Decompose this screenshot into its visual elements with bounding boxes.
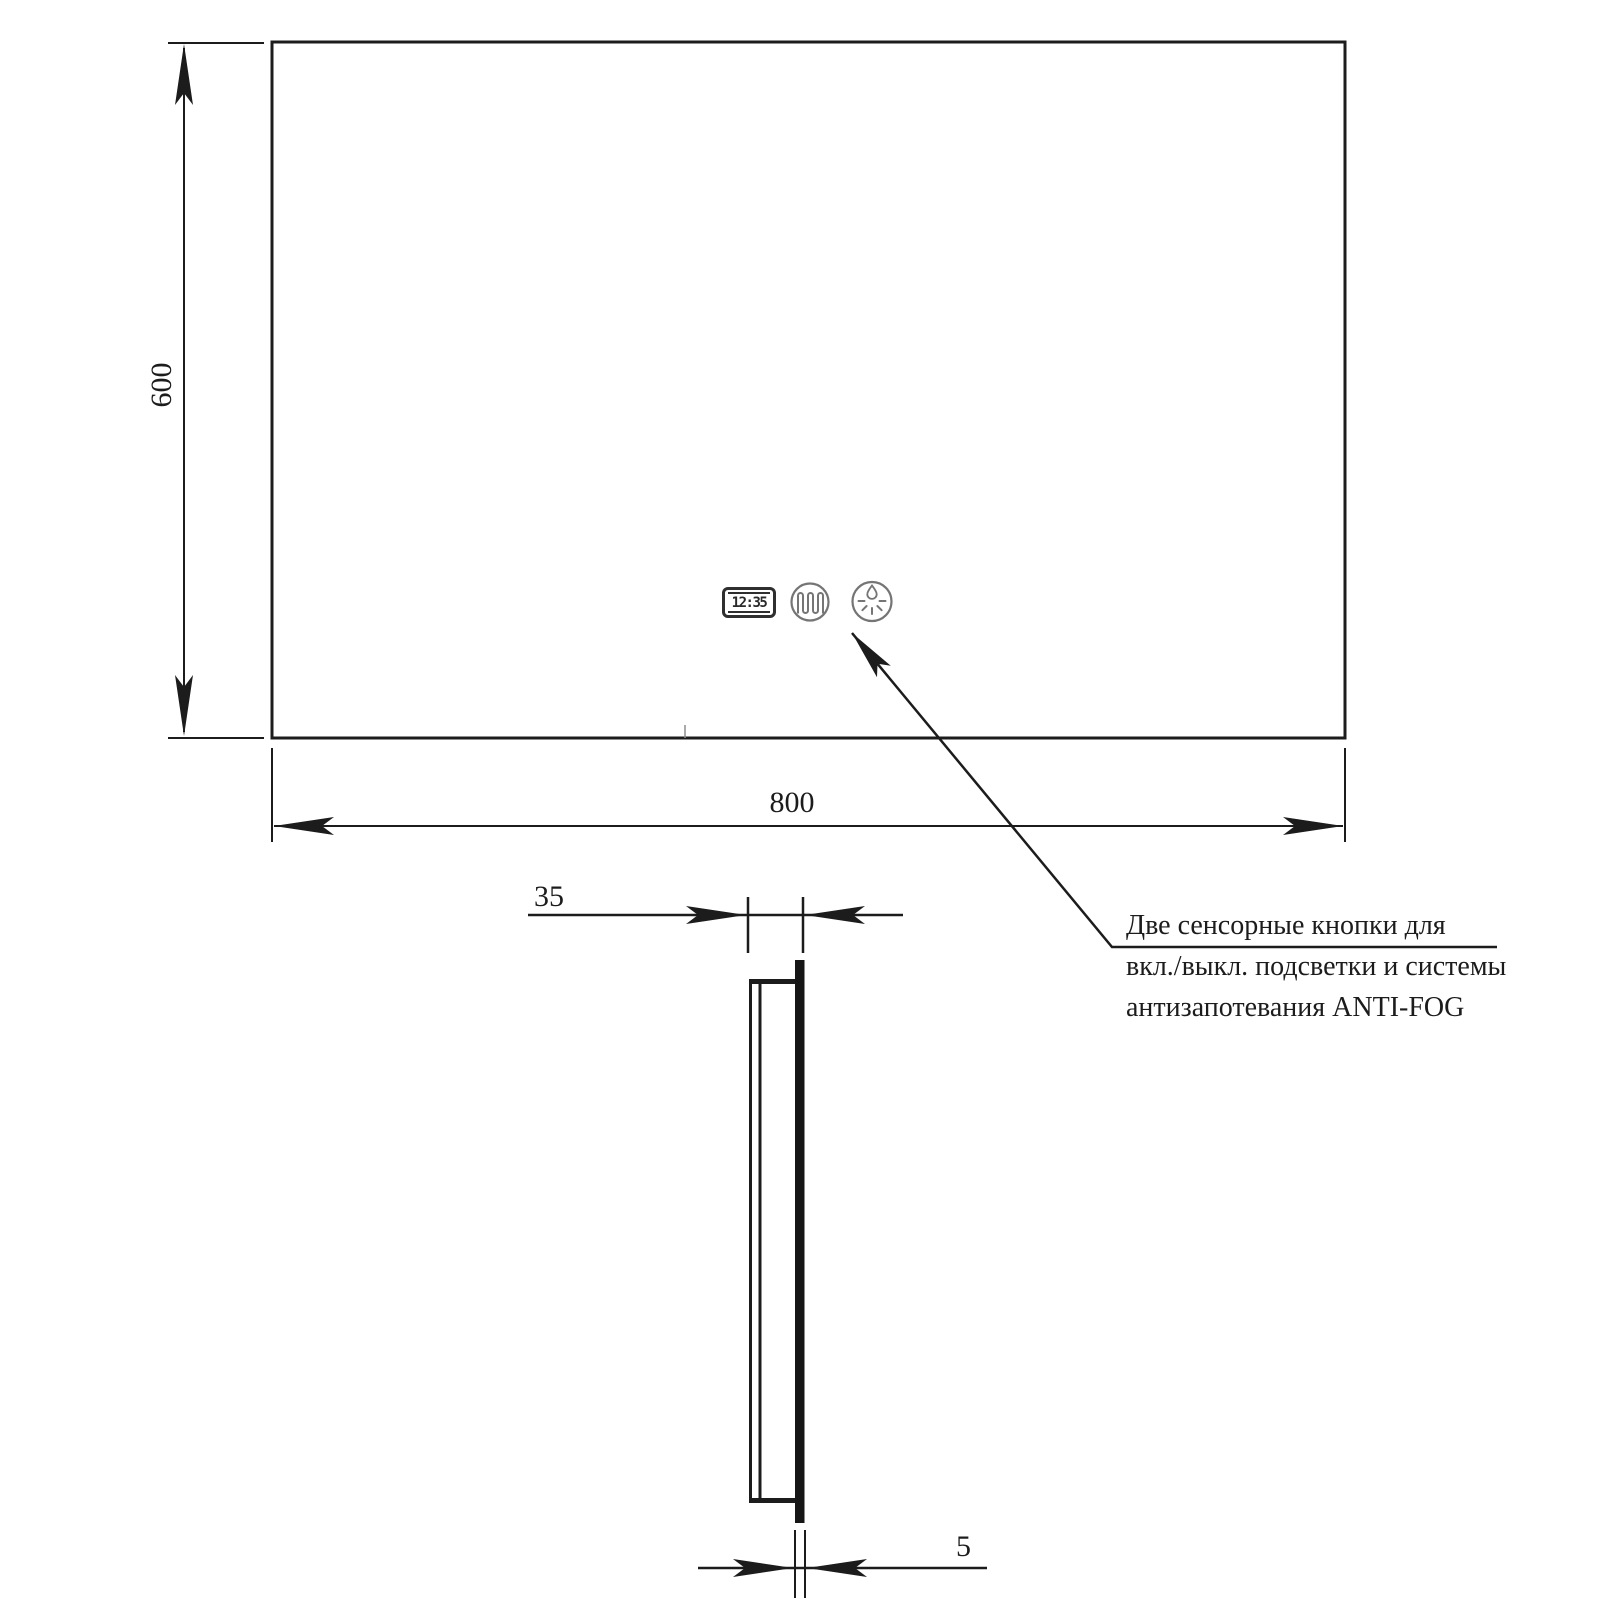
height-dim-label: 600 <box>145 340 179 430</box>
dim-5-lines <box>698 1530 987 1598</box>
leader-arrowhead-icon <box>852 633 891 677</box>
annotation-line-3: антизапотевания ANTI-FOG <box>1126 991 1464 1025</box>
clock-display-icon: 12:35 <box>722 587 776 618</box>
leader-arrow <box>852 633 1497 947</box>
glass-thickness-dim-label: 5 <box>956 1530 971 1564</box>
profile-mirror-glass <box>795 960 805 1523</box>
depth-dim-label: 35 <box>534 880 564 914</box>
droplet-glyph <box>867 586 876 599</box>
mirror-front-rect <box>272 42 1345 738</box>
leader-line <box>852 633 1497 947</box>
annotation-line-2: вкл./выкл. подсветки и системы <box>1126 950 1506 984</box>
side-view-profile <box>749 960 805 1523</box>
width-dim-label: 800 <box>722 786 862 820</box>
droplet-rays-icon <box>853 582 892 621</box>
dim-600-lines <box>168 43 264 738</box>
heater-coil-icon <box>792 584 829 621</box>
front-view-outline <box>272 42 1345 738</box>
dim-35-lines <box>528 897 903 953</box>
heater-coil-glyph <box>798 593 823 614</box>
technical-drawing-canvas: 12:35 600 800 35 5 Две сенсорные кнопки … <box>0 0 1600 1600</box>
clock-time: 12:35 <box>728 592 770 613</box>
rays-glyph <box>859 601 886 614</box>
annotation-line-1: Две сенсорные кнопки для <box>1126 909 1446 943</box>
